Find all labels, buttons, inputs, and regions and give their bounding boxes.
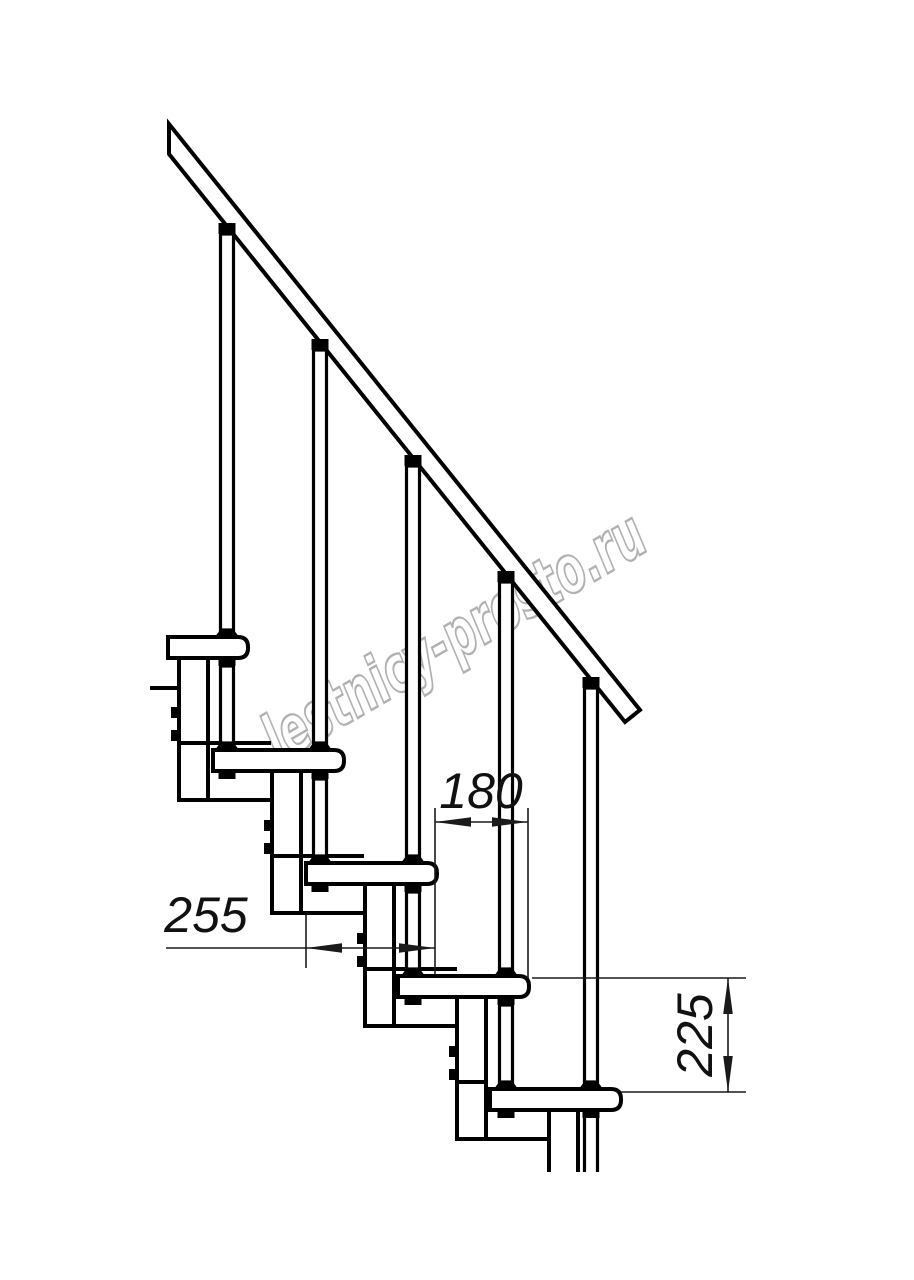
foot-cap [401, 856, 425, 863]
dimension-step-run-value: 180 [439, 763, 523, 819]
nut [219, 771, 236, 779]
rail-cap-5 [583, 677, 600, 688]
rail-cap-3 [405, 455, 422, 466]
staircase-technical-drawing: lestnicy-prosto.ru [0, 0, 914, 1280]
nut [498, 997, 515, 1005]
baluster-2 [314, 350, 327, 856]
tread-4 [398, 976, 529, 997]
rail-cap-1 [219, 223, 236, 234]
tread-3 [306, 863, 437, 884]
rail-cap-4 [498, 571, 515, 582]
nut [219, 658, 236, 666]
nut [312, 771, 329, 779]
nut [405, 997, 422, 1005]
foot-cap [579, 1082, 603, 1089]
nut [498, 1110, 515, 1118]
dimension-step-rise: 225 [532, 978, 746, 1092]
tread-5 [490, 1089, 621, 1110]
foot-cap [494, 969, 518, 976]
nut [583, 1110, 600, 1118]
nut [312, 884, 329, 892]
dimension-step-rise-value: 225 [667, 993, 723, 1078]
foot-cap [494, 1082, 518, 1089]
dimensions: 180 255 225 [163, 763, 746, 1092]
baluster-3 [407, 466, 420, 969]
nut [405, 884, 422, 892]
bracket-module-5 [549, 1110, 578, 1172]
dimension-tread-depth-value: 255 [163, 887, 248, 943]
tread-1 [168, 637, 248, 658]
rail-cap-2 [312, 339, 329, 350]
baluster-1 [221, 234, 234, 743]
tread-2 [213, 750, 344, 771]
foot-cap [215, 630, 239, 637]
baluster-4 [500, 582, 513, 1082]
